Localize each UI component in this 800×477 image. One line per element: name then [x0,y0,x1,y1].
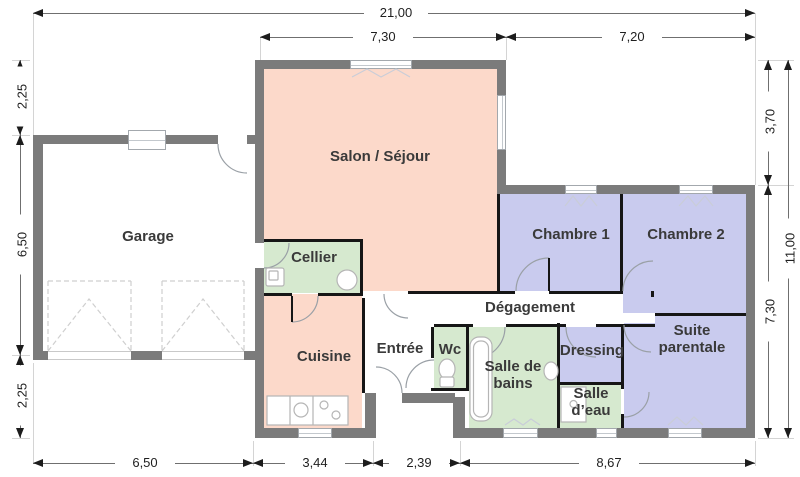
dim-label-right-upper: 3,70 [763,92,778,152]
dim-arrow [784,60,792,70]
dim-label-left-bottom: 2,25 [15,366,30,426]
dim-arrow [33,459,43,467]
dim-arrow [33,9,43,17]
dim-label-bottom-garage: 6,50 [115,455,175,470]
window [565,185,597,194]
dim-label-left-top: 2,25 [15,67,30,127]
wall-segment [365,403,376,435]
wall-segment [33,135,43,360]
room-label-chambre2: Chambre 2 [636,227,736,244]
partition-wall [318,293,363,296]
dim-arrow [764,428,772,438]
dim-arrow [496,33,506,41]
window [668,428,702,438]
wall-segment [402,393,455,403]
partition-wall [360,239,363,296]
dim-arrow [784,428,792,438]
wall-segment [597,185,679,194]
room-label-wc: Wc [432,342,468,359]
dim-arrow [764,175,772,185]
dim-arrow [363,459,373,467]
dim-arrow [764,185,772,195]
door-opening [255,243,264,268]
room-label-suite: Suite parentale [650,323,734,357]
wall-segment [453,397,465,435]
dim-label-top-right: 7,20 [602,29,662,44]
chimney-block [128,130,166,150]
room-label-salle-deau: Salle d’eau [566,386,616,420]
room-label-salle-de-bains: Salle de bains [478,359,548,393]
dim-label-top-total: 21,00 [364,5,428,20]
partition-wall [620,194,623,294]
wall-segment [33,135,218,144]
dim-label-bottom-right: 8,67 [579,455,639,470]
dim-arrow [16,355,24,365]
wall-segment [365,393,376,403]
partition-wall [549,291,623,294]
dim-arrow [373,459,383,467]
wall-segment [244,351,264,360]
wall-segment [538,428,596,438]
garage-door-dashed [48,281,131,351]
window [350,60,412,69]
dim-arrow [506,33,516,41]
wall-segment [497,60,506,95]
dim-label-right-lower: 7,30 [763,282,778,342]
room-label-cellier: Cellier [274,250,354,267]
wall-segment [33,351,48,360]
extension-line [33,13,34,135]
partition-wall [466,327,469,391]
wall-segment [255,60,264,243]
wall-segment [702,428,755,438]
room-label-chambre1: Chambre 1 [521,227,621,244]
dim-label-left-middle: 6,50 [15,215,30,275]
extension-line [33,363,34,463]
dim-arrow [450,459,460,467]
room-label-cuisine: Cuisine [274,349,374,366]
door-swing-arc [376,367,402,393]
chambre2-area [623,194,746,313]
room-label-salon: Salon / Séjour [310,149,450,166]
partition-wall [655,313,746,316]
front-door-opening [376,393,402,403]
door-swing-arc [406,360,434,388]
wall-segment [247,135,264,144]
dim-arrow [253,459,263,467]
door-opening [218,135,247,144]
partition-wall [621,414,624,428]
partition-wall [497,194,500,294]
dim-arrow [745,459,755,467]
partition-wall [557,323,560,428]
garage-door-opening [162,351,244,360]
room-label-dressing: Dressing [548,343,636,360]
garage-door-dashed [162,281,244,351]
partition-wall [596,324,655,327]
wall-segment [131,351,162,360]
dim-arrow [745,9,755,17]
dim-label-bottom-cuisine: 3,44 [285,455,345,470]
dim-arrow [16,125,24,135]
garage-door-opening [48,351,131,360]
dim-arrow [16,135,24,145]
dim-arrow [260,33,270,41]
window [497,95,506,150]
dim-label-bottom-porch: 2,39 [389,455,449,470]
partition-wall [651,291,654,297]
door-swing-arc [218,144,247,173]
dim-arrow [243,459,253,467]
dim-label-top-salon: 7,30 [353,29,413,44]
door-swing-arc [384,294,408,318]
partition-wall [431,388,469,391]
extension-line [755,441,756,466]
room-label-degagement: Dégagement [470,300,590,317]
dim-arrow [745,33,755,41]
dim-label-right-total: 11,00 [783,219,798,279]
room-label-entree: Entrée [362,341,438,358]
window [298,428,332,438]
wall-segment [617,428,668,438]
window [596,428,617,438]
wall-segment [255,268,264,428]
extension-line [758,438,794,439]
window [503,428,538,438]
partition-wall [264,293,292,296]
wall-segment [497,185,565,194]
wall-segment [497,150,506,185]
dim-arrow [460,459,470,467]
floor-plan: 21,00 7,30 7,20 2,25 6,50 2,25 3,70 7,30… [0,0,800,477]
dim-arrow [16,345,24,355]
extension-line [755,13,756,185]
extension-line [12,438,30,439]
wall-segment [746,185,755,438]
window [679,185,713,194]
wall-segment [255,428,298,438]
dim-arrow [16,428,24,438]
dim-arrow [764,60,772,70]
room-label-garage: Garage [98,229,198,246]
partition-wall [264,239,363,242]
